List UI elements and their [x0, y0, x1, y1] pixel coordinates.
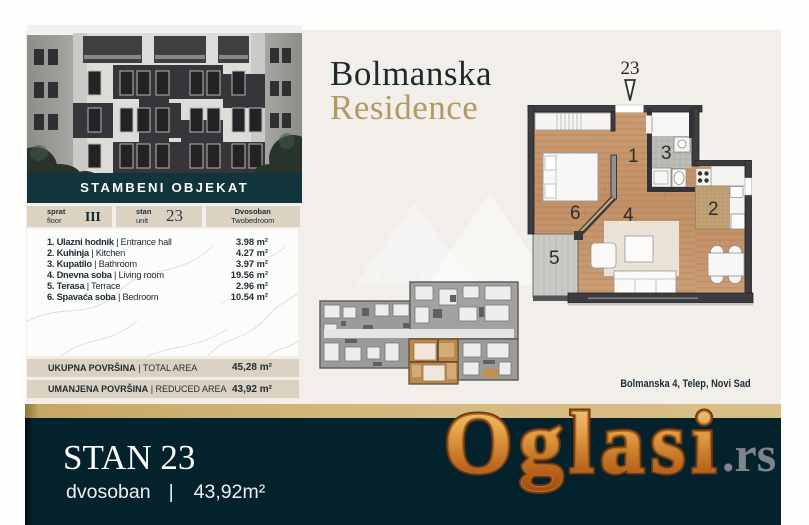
svg-text:2: 2 — [708, 199, 719, 220]
svg-text:4: 4 — [623, 205, 634, 226]
svg-text:1: 1 — [628, 146, 639, 167]
svg-text:3: 3 — [661, 143, 672, 164]
svg-text:5: 5 — [549, 248, 560, 269]
svg-text:Oglasi: Oglasi — [444, 395, 723, 492]
svg-text:.rs: .rs — [722, 426, 776, 482]
svg-text:23: 23 — [621, 58, 640, 79]
svg-text:6: 6 — [570, 203, 581, 224]
